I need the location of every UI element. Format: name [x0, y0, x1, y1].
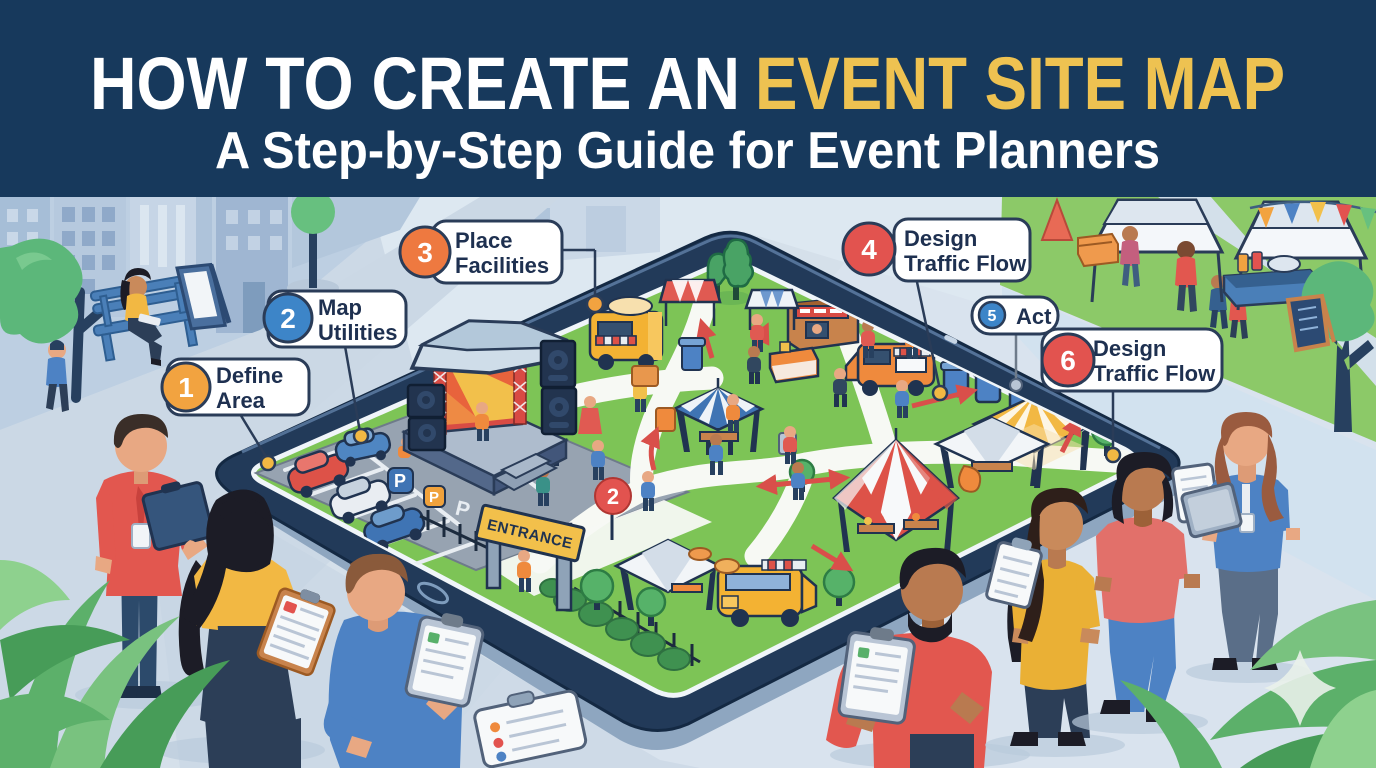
svg-text:EVENT SITE MAP: EVENT SITE MAP [755, 42, 1285, 125]
svg-text:Facilities: Facilities [455, 253, 549, 278]
svg-text:Traffic Flow: Traffic Flow [1093, 361, 1216, 386]
svg-text:Design: Design [904, 226, 977, 251]
svg-text:1: 1 [178, 372, 194, 403]
svg-text:Traffic Flow: Traffic Flow [904, 251, 1027, 276]
svg-text:Place: Place [455, 228, 513, 253]
svg-text:4: 4 [861, 234, 877, 265]
svg-text:3: 3 [417, 237, 433, 268]
svg-text:P: P [429, 489, 439, 506]
svg-text:6: 6 [1060, 345, 1076, 376]
svg-text:Utilities: Utilities [318, 320, 397, 345]
svg-text:2: 2 [280, 303, 296, 334]
svg-text:2: 2 [607, 484, 619, 509]
svg-text:5: 5 [988, 308, 997, 325]
svg-text:Define: Define [216, 363, 283, 388]
svg-text:A Step-by-Step Guide for Event: A Step-by-Step Guide for Event Planners [215, 122, 1160, 180]
svg-text:Map: Map [318, 295, 362, 320]
svg-text:P: P [394, 471, 406, 491]
svg-text:HOW TO CREATE AN: HOW TO CREATE AN [90, 42, 740, 125]
svg-text:Area: Area [216, 388, 266, 413]
svg-text:Act: Act [1016, 304, 1052, 329]
svg-text:Design: Design [1093, 336, 1166, 361]
